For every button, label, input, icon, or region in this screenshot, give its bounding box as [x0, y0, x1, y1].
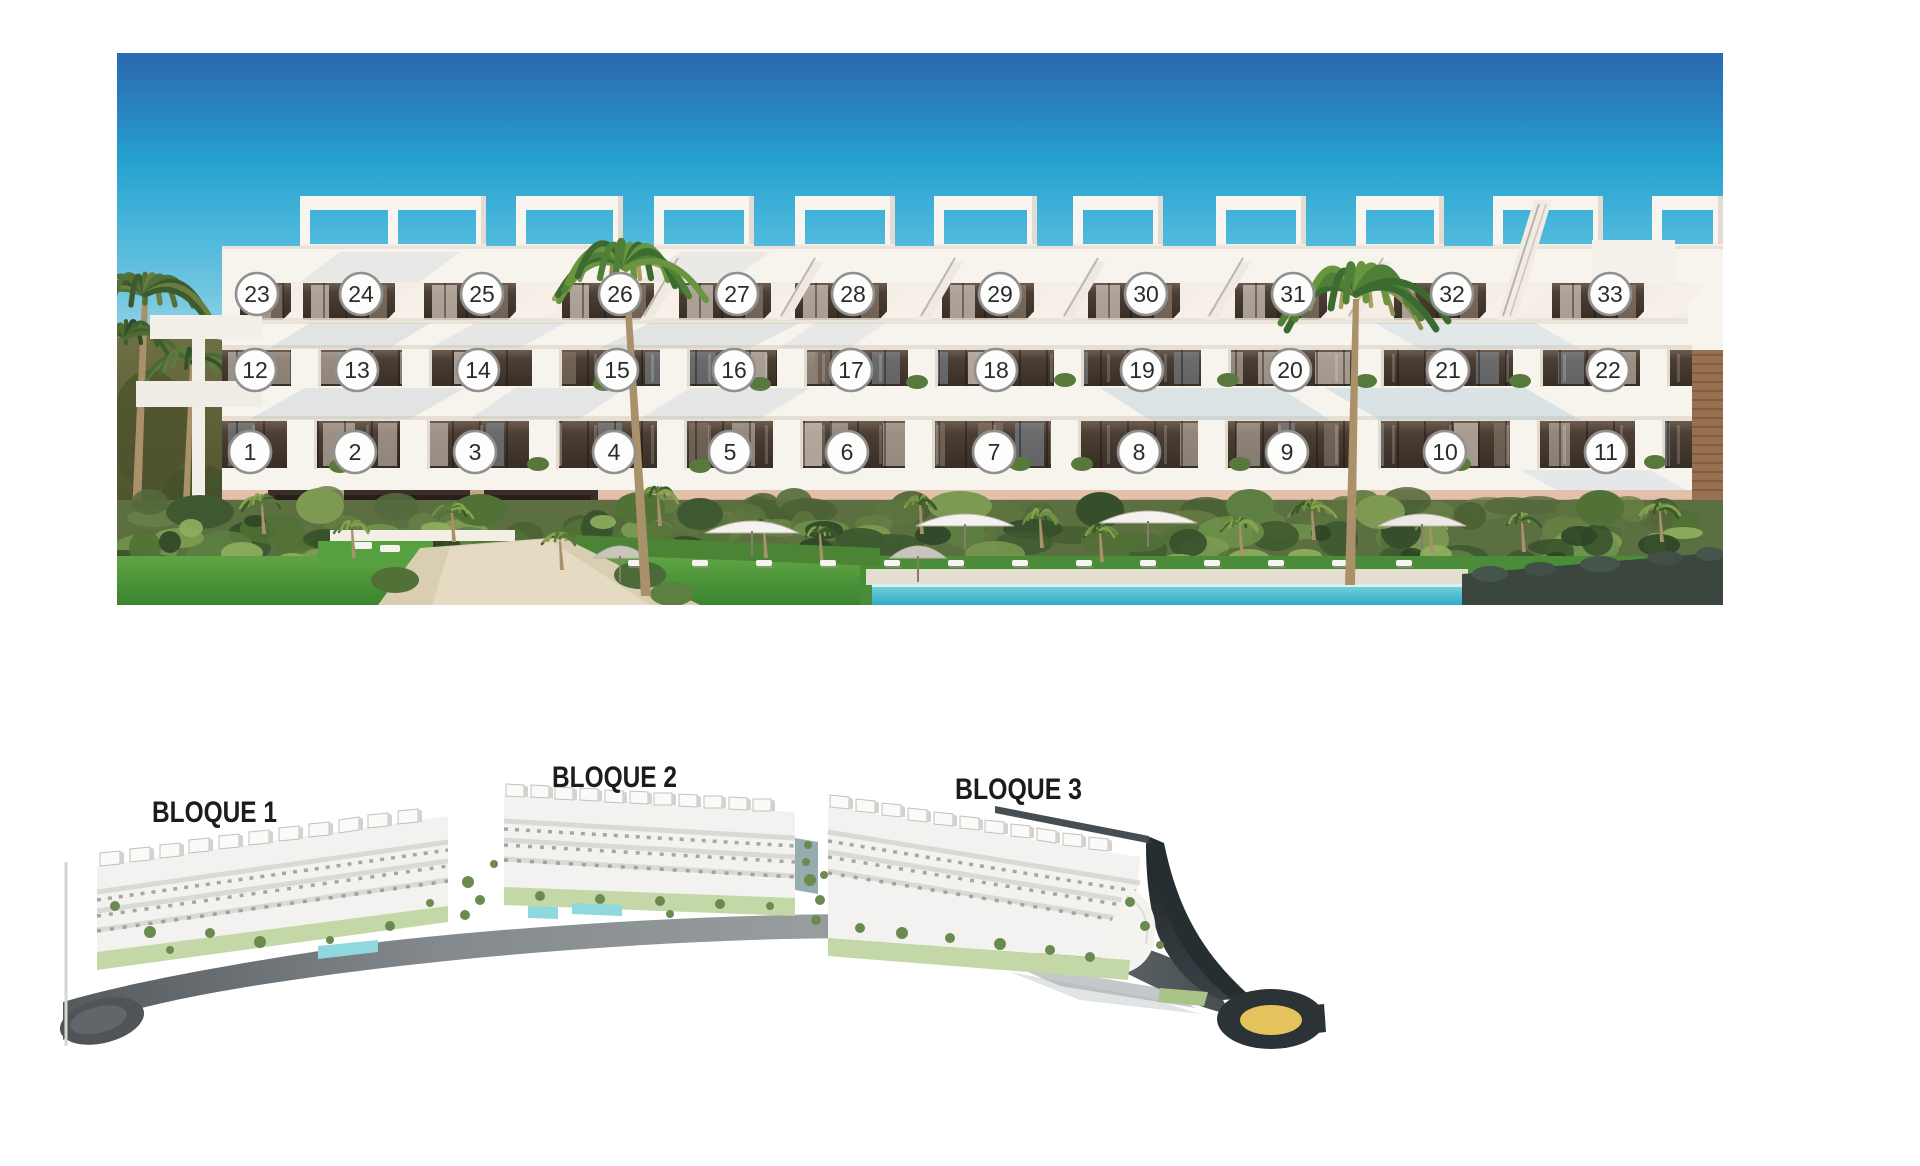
svg-text:21: 21	[1435, 357, 1461, 383]
svg-text:15: 15	[604, 357, 630, 383]
svg-text:27: 27	[724, 281, 750, 307]
svg-text:17: 17	[838, 357, 864, 383]
svg-text:5: 5	[724, 439, 737, 465]
svg-text:14: 14	[465, 357, 491, 383]
svg-text:10: 10	[1432, 439, 1458, 465]
svg-text:31: 31	[1280, 281, 1306, 307]
svg-text:22: 22	[1595, 357, 1621, 383]
svg-text:BLOQUE 2: BLOQUE 2	[552, 761, 677, 794]
svg-text:6: 6	[841, 439, 854, 465]
svg-text:4: 4	[608, 439, 621, 465]
svg-text:11: 11	[1594, 439, 1618, 465]
svg-text:12: 12	[242, 357, 268, 383]
svg-text:32: 32	[1439, 281, 1465, 307]
svg-text:33: 33	[1597, 281, 1623, 307]
svg-text:16: 16	[721, 357, 747, 383]
svg-text:3: 3	[469, 439, 482, 465]
svg-text:26: 26	[607, 281, 633, 307]
svg-text:20: 20	[1277, 357, 1303, 383]
svg-text:BLOQUE 3: BLOQUE 3	[955, 773, 1082, 806]
svg-text:9: 9	[1281, 439, 1294, 465]
svg-text:30: 30	[1133, 281, 1159, 307]
svg-text:1: 1	[244, 439, 257, 465]
svg-text:28: 28	[840, 281, 866, 307]
svg-text:BLOQUE 1: BLOQUE 1	[152, 796, 277, 829]
svg-text:2: 2	[349, 439, 362, 465]
svg-text:19: 19	[1129, 357, 1155, 383]
svg-text:7: 7	[988, 439, 1001, 465]
svg-text:25: 25	[469, 281, 495, 307]
svg-text:8: 8	[1133, 439, 1146, 465]
svg-text:29: 29	[987, 281, 1013, 307]
svg-text:18: 18	[983, 357, 1009, 383]
svg-text:24: 24	[348, 281, 374, 307]
svg-text:23: 23	[244, 281, 270, 307]
svg-text:13: 13	[344, 357, 370, 383]
